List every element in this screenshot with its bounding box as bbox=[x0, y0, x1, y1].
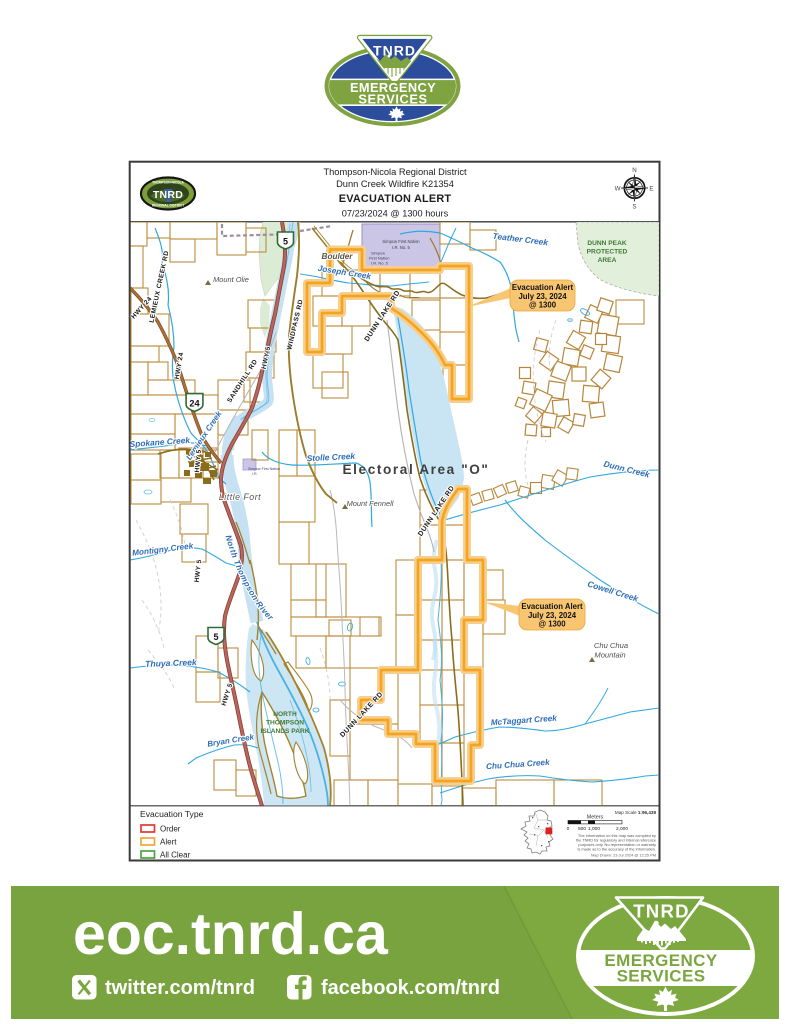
svg-text:24: 24 bbox=[189, 398, 200, 408]
svg-text:500: 500 bbox=[578, 826, 586, 832]
svg-text:Evacuation Type: Evacuation Type bbox=[140, 809, 204, 819]
svg-text:Evacuation Alert: Evacuation Alert bbox=[512, 283, 574, 292]
svg-text:Boulder: Boulder bbox=[322, 252, 354, 261]
svg-text:I.R. No. 5: I.R. No. 5 bbox=[371, 261, 389, 266]
svg-text:ISLANDS PARK: ISLANDS PARK bbox=[261, 728, 310, 735]
svg-text:All Clear: All Clear bbox=[160, 851, 191, 860]
svg-text:AREA: AREA bbox=[598, 257, 617, 264]
svg-text:TNRD: TNRD bbox=[153, 189, 183, 201]
svg-text:twitter.com/tnrd: twitter.com/tnrd bbox=[105, 977, 255, 999]
svg-text:REGIONAL DISTRICT: REGIONAL DISTRICT bbox=[152, 204, 184, 208]
svg-text:Mount Fennell: Mount Fennell bbox=[347, 499, 394, 508]
svg-text:TNRD: TNRD bbox=[373, 43, 416, 59]
svg-text:I.R. No. 5: I.R. No. 5 bbox=[392, 245, 410, 250]
svg-text:facebook.com/tnrd: facebook.com/tnrd bbox=[321, 977, 500, 999]
svg-text:DUNN PEAK: DUNN PEAK bbox=[587, 240, 626, 247]
svg-text:Mountain: Mountain bbox=[594, 651, 625, 660]
svg-text:eoc.tnrd.ca: eoc.tnrd.ca bbox=[73, 901, 389, 967]
svg-text:Meters: Meters bbox=[587, 815, 604, 821]
svg-text:NORTH: NORTH bbox=[273, 711, 297, 718]
svg-text:5: 5 bbox=[283, 236, 288, 246]
svg-text:W: W bbox=[615, 186, 621, 193]
svg-text:@ 1300: @ 1300 bbox=[529, 301, 557, 310]
svg-text:Mount Olie: Mount Olie bbox=[213, 275, 249, 284]
svg-text:I.R.: I.R. bbox=[252, 472, 258, 476]
svg-text:THOMPSON-NICOLA: THOMPSON-NICOLA bbox=[152, 180, 184, 184]
svg-text:PROTECTED: PROTECTED bbox=[587, 249, 628, 256]
svg-text:Simpcw First Nation: Simpcw First Nation bbox=[248, 467, 280, 471]
svg-text:Map Scale 1:96,438: Map Scale 1:96,438 bbox=[615, 810, 657, 815]
svg-text:0: 0 bbox=[567, 826, 570, 832]
svg-text:Alert: Alert bbox=[160, 838, 177, 847]
svg-text:Evacuation Alert: Evacuation Alert bbox=[521, 602, 583, 611]
svg-text:2,000: 2,000 bbox=[616, 826, 628, 832]
svg-text:07/23/2024 @ 1300 hours: 07/23/2024 @ 1300 hours bbox=[342, 209, 449, 219]
svg-text:is made as to the accuracy of: is made as to the accuracy of the inform… bbox=[577, 847, 656, 852]
svg-text:@ 1300: @ 1300 bbox=[538, 620, 566, 629]
svg-text:Simpcw First Nation: Simpcw First Nation bbox=[382, 239, 420, 244]
svg-text:5: 5 bbox=[213, 632, 218, 642]
svg-text:Electoral Area "O": Electoral Area "O" bbox=[343, 462, 490, 477]
svg-text:N: N bbox=[632, 167, 636, 174]
svg-text:SERVICES: SERVICES bbox=[358, 91, 427, 106]
svg-text:1,000: 1,000 bbox=[588, 826, 600, 832]
svg-text:SERVICES: SERVICES bbox=[617, 967, 706, 986]
svg-text:Dunn Creek Wildfire K21354: Dunn Creek Wildfire K21354 bbox=[336, 179, 454, 189]
svg-text:THOMPSON: THOMPSON bbox=[266, 720, 304, 727]
svg-text:EVACUATION ALERT: EVACUATION ALERT bbox=[339, 193, 452, 205]
svg-text:Thompson-Nicola Regional Distr: Thompson-Nicola Regional District bbox=[323, 167, 467, 177]
svg-text:Order: Order bbox=[160, 825, 181, 834]
svg-text:Little Fort: Little Fort bbox=[219, 492, 261, 502]
svg-text:TNRD: TNRD bbox=[633, 901, 690, 922]
svg-text:Thuya Creek: Thuya Creek bbox=[145, 657, 198, 669]
svg-text:Chu Chua: Chu Chua bbox=[594, 641, 628, 650]
svg-text:Map Drawn: 23 Jul 2024 @ 12:25: Map Drawn: 23 Jul 2024 @ 12:25 PM bbox=[591, 853, 656, 858]
svg-text:S: S bbox=[632, 204, 636, 211]
svg-text:E: E bbox=[649, 186, 653, 193]
